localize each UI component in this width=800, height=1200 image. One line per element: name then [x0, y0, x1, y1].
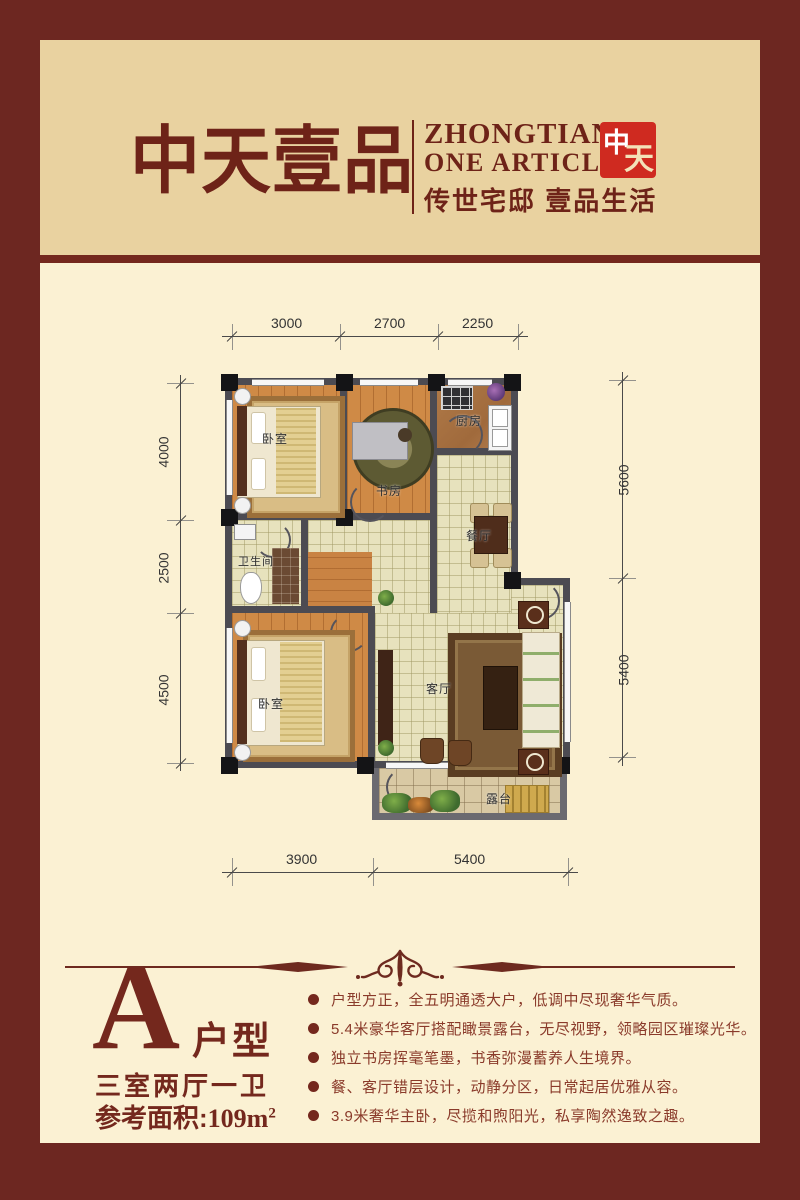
feature-text: 户型方正，全五明通透大户，低调中尽现奢华气质。 [331, 989, 688, 1010]
side-table [518, 601, 549, 629]
bedroom2-headboard [237, 640, 247, 744]
column [336, 374, 353, 391]
nightstand [234, 388, 251, 405]
dim-right-1: 5600 [616, 464, 632, 495]
window [226, 400, 233, 495]
bullet-icon [308, 1110, 319, 1121]
feature-text: 独立书房挥毫笔墨，书香弥漫蓄养人生境界。 [331, 1047, 641, 1068]
label-terrace: 露台 [486, 790, 512, 807]
dim-right-2: 5400 [616, 654, 632, 685]
header-vertical-rule [412, 120, 414, 214]
kitchen-flowers [487, 383, 505, 401]
sofa [522, 632, 560, 748]
dim-line-bottom [222, 872, 578, 873]
window [564, 602, 571, 742]
shower-area [272, 548, 299, 604]
decor [526, 606, 544, 624]
brand-seal-logo: 中 天 [600, 122, 656, 178]
study-chair [398, 428, 412, 442]
feature-item: 户型方正，全五明通透大户，低调中尽现奢华气质。 [308, 985, 738, 1014]
flyer-frame: 中天壹品 ZHONGTIAN ONE ARTICLE 传世宅邸 壹品生活 中 天 [0, 0, 800, 1200]
dim-bottom-2: 5400 [454, 851, 485, 867]
bedroom1-blanket [276, 408, 316, 494]
coffee-table [483, 666, 518, 730]
feature-item: 5.4米豪华客厅搭配瞰景露台，无尽视野，领略园区璀璨光华。 [308, 1014, 738, 1043]
label-dining: 餐厅 [466, 527, 492, 544]
brand-en-line1: ZHONGTIAN [424, 118, 613, 151]
label-bedroom2: 卧室 [258, 695, 284, 712]
window [252, 379, 324, 386]
feature-item: 3.9米奢华主卧，尽揽和煦阳光，私享陶然逸致之趣。 [308, 1101, 738, 1130]
dim-left-2: 2500 [156, 552, 172, 583]
label-bedroom1: 卧室 [262, 430, 288, 447]
side-table [518, 749, 549, 775]
wall-bottom-left [225, 761, 375, 768]
sink-basin [492, 429, 508, 447]
wall-study-right [430, 378, 437, 613]
divider-line-right [485, 966, 735, 968]
dim-bottom-1: 3900 [286, 851, 317, 867]
unit-type-suffix: 户型 [192, 1010, 272, 1065]
unit-type-letter: A [92, 958, 180, 1058]
wall-right-upper [511, 378, 518, 585]
bullet-icon [308, 1052, 319, 1063]
dim-line-left [180, 375, 181, 771]
terrace-plant [430, 790, 460, 812]
bedroom1-headboard [237, 406, 247, 496]
label-kitchen: 厨房 [456, 412, 482, 429]
feature-text: 餐、客厅错层设计，动静分区，日常起居优雅从容。 [331, 1076, 688, 1097]
dim-left-3: 4500 [156, 674, 172, 705]
bedroom2-blanket [280, 642, 322, 742]
nightstand [234, 744, 251, 761]
column [357, 757, 374, 774]
bullet-icon [308, 1081, 319, 1092]
kitchen-stove [441, 386, 473, 410]
window [448, 379, 492, 386]
armchair [420, 738, 444, 764]
wall-bedroom2-right [368, 613, 375, 768]
window [226, 628, 233, 743]
dim-line-top [222, 336, 528, 337]
dim-top-2: 2700 [374, 315, 405, 331]
pillow [251, 458, 266, 490]
pillow [251, 647, 266, 681]
plant [378, 740, 394, 756]
terrace-wall-bottom [372, 813, 567, 820]
dim-line-right [622, 372, 623, 766]
study-desk [352, 422, 408, 460]
nightstand [234, 620, 251, 637]
label-bathroom: 卫生间 [238, 553, 274, 569]
column [221, 757, 238, 774]
unit-area: 参考面积:109m2 [95, 1098, 276, 1135]
feature-text: 5.4米豪华客厅搭配瞰景露台，无尽视野，领略园区璀璨光华。 [331, 1018, 756, 1039]
sink-basin [492, 409, 508, 427]
unit-area-value: 109m [208, 1104, 269, 1133]
feature-text: 3.9米奢华主卧，尽揽和煦阳光，私享陶然逸致之趣。 [331, 1105, 694, 1126]
armchair [448, 740, 472, 766]
decor [526, 753, 544, 771]
brand-title-cn: 中天壹品 [130, 116, 415, 206]
bathroom-sink [234, 524, 256, 540]
column [221, 374, 238, 391]
tv-cabinet [378, 650, 393, 745]
unit-area-prefix: 参考面积: [95, 1103, 208, 1133]
kitchen-sink-cabinet [488, 405, 512, 451]
nightstand [234, 497, 251, 514]
wall-bathroom-right [301, 520, 308, 613]
corridor-floor [308, 552, 372, 613]
bullet-icon [308, 1023, 319, 1034]
seal-char-2: 天 [624, 134, 654, 178]
brand-en-line2: ONE ARTICLE [424, 148, 619, 178]
feature-item: 餐、客厅错层设计，动静分区，日常起居优雅从容。 [308, 1072, 738, 1101]
feature-item: 独立书房挥毫笔墨，书香弥漫蓄养人生境界。 [308, 1043, 738, 1072]
dim-top-1: 3000 [271, 315, 302, 331]
label-living: 客厅 [426, 680, 452, 697]
brand-tagline: 传世宅邸 壹品生活 [424, 181, 657, 218]
unit-area-sup: 2 [268, 1105, 276, 1121]
bullet-icon [308, 994, 319, 1005]
column [504, 572, 521, 589]
plant [378, 590, 394, 606]
header-divider-band [40, 255, 760, 263]
dim-left-1: 4000 [156, 436, 172, 467]
window [360, 379, 418, 386]
dim-top-3: 2250 [462, 315, 493, 331]
label-study: 书房 [376, 482, 402, 499]
toilet [240, 572, 262, 604]
wall-bathroom-bottom [225, 606, 375, 613]
column [504, 374, 521, 391]
